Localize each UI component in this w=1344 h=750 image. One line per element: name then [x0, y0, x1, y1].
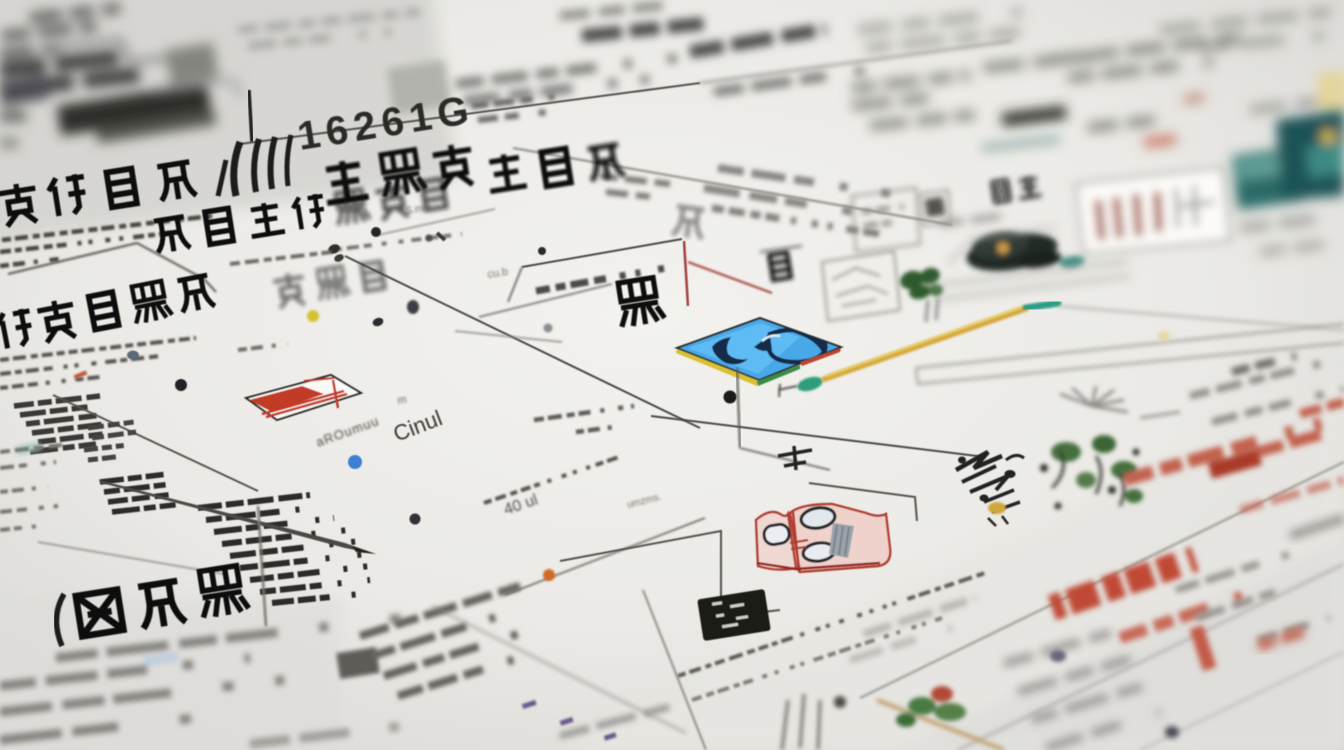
svg-text:m: m: [397, 394, 408, 407]
